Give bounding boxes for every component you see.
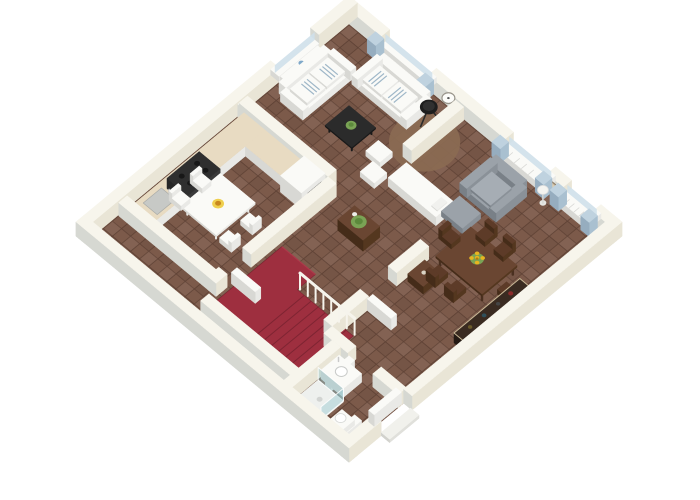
floorplan-svg	[0, 0, 700, 500]
floorplan-3d-view	[0, 0, 700, 500]
